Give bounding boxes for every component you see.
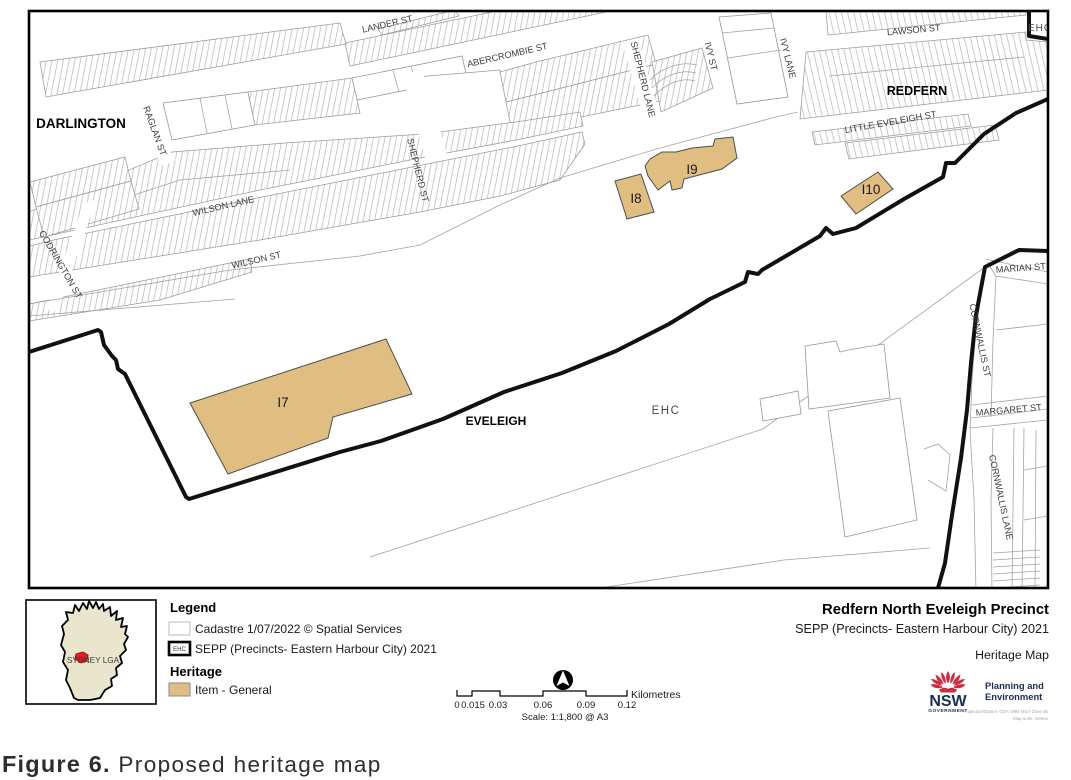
svg-text:Legend: Legend: [170, 600, 216, 615]
svg-text:I10: I10: [862, 182, 881, 197]
svg-text:Heritage: Heritage: [170, 664, 222, 679]
svg-text:SEPP (Precincts- Eastern Harbo: SEPP (Precincts- Eastern Harbour City) 2…: [795, 622, 1049, 636]
svg-text:Environment: Environment: [985, 691, 1042, 702]
svg-text:0: 0: [454, 700, 459, 711]
svg-text:Projection/Datum: GDA 1994 MGA: Projection/Datum: GDA 1994 MGA Zone 56: [963, 709, 1048, 714]
svg-text:Redfern North Eveleigh Precinc: Redfern North Eveleigh Precinct: [822, 602, 1049, 618]
svg-text:EHC: EHC: [173, 647, 186, 653]
svg-text:0.03: 0.03: [489, 700, 508, 711]
svg-text:Kilometres: Kilometres: [631, 689, 681, 701]
svg-text:Figure 6. Proposed heritage ma: Figure 6. Proposed heritage map: [2, 751, 382, 777]
svg-text:Scale: 1:1,800 @ A3: Scale: 1:1,800 @ A3: [522, 712, 609, 723]
svg-text:SEPP (Precincts- Eastern Harbo: SEPP (Precincts- Eastern Harbour City) 2…: [195, 642, 437, 656]
svg-text:SYDNEY LGA: SYDNEY LGA: [67, 656, 120, 665]
svg-text:Heritage Map: Heritage Map: [975, 648, 1049, 662]
svg-text:0.12: 0.12: [618, 700, 637, 711]
svg-text:REDFERN: REDFERN: [887, 84, 947, 98]
svg-text:I8: I8: [630, 191, 641, 206]
svg-text:Item - General: Item - General: [195, 683, 272, 697]
svg-text:I7: I7: [277, 395, 288, 410]
svg-text:EVELEIGH: EVELEIGH: [466, 414, 527, 428]
svg-text:DARLINGTON: DARLINGTON: [36, 116, 126, 131]
svg-text:0.015: 0.015: [461, 700, 485, 711]
svg-text:Map units: metres: Map units: metres: [1013, 716, 1049, 721]
svg-text:0.06: 0.06: [534, 700, 553, 711]
svg-text:NSW: NSW: [929, 693, 967, 710]
svg-text:Cadastre 1/07/2022 © Spatial S: Cadastre 1/07/2022 © Spatial Services: [195, 622, 402, 636]
svg-text:EHC: EHC: [652, 405, 681, 417]
svg-text:Planning and: Planning and: [985, 680, 1044, 691]
svg-text:0.09: 0.09: [577, 700, 596, 711]
svg-text:I9: I9: [686, 162, 697, 177]
svg-text:GOVERNMENT: GOVERNMENT: [928, 708, 967, 714]
